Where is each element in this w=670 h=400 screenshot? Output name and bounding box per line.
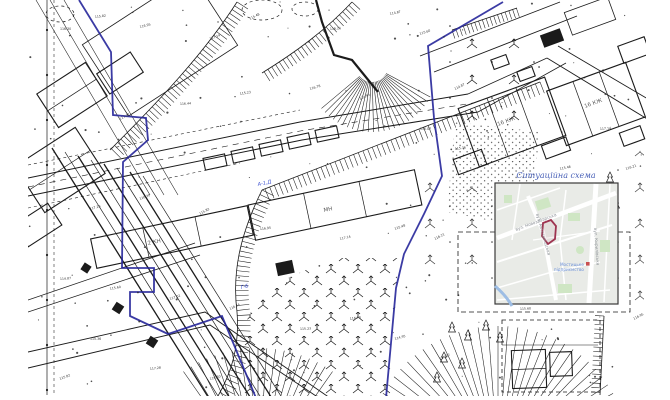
svg-text:117.02: 117.02	[119, 112, 131, 120]
svg-text:116.95: 116.95	[633, 312, 645, 321]
svg-text:116.07: 116.07	[420, 127, 431, 131]
svg-text:116.07: 116.07	[439, 353, 451, 361]
svg-text:116.30: 116.30	[139, 193, 151, 201]
svg-text:114.87: 114.87	[60, 276, 71, 281]
topographic-plan-canvas: 116.30115.82116.95117.14115.48116.21114.…	[0, 0, 670, 400]
svg-text:115.36: 115.36	[90, 337, 101, 341]
svg-text:116.30: 116.30	[209, 374, 221, 381]
svg-text:116.78: 116.78	[309, 84, 321, 91]
svg-text:116.21: 116.21	[330, 26, 341, 31]
building-label-16kzh-2: 16 КЖ	[584, 98, 604, 110]
svg-text:117.14: 117.14	[339, 235, 351, 241]
svg-text:115.60: 115.60	[109, 285, 121, 291]
survey-plan-page: 116.30115.82116.95117.14115.48116.21114.…	[0, 0, 670, 400]
building-label-mn: МН	[323, 206, 333, 214]
inset-poi-marker	[586, 262, 590, 266]
svg-text:114.87: 114.87	[389, 10, 401, 16]
svg-text:116.95: 116.95	[260, 226, 272, 231]
svg-text:115.23: 115.23	[239, 90, 251, 96]
svg-text:116.30: 116.30	[60, 27, 71, 31]
svg-text:115.23: 115.23	[300, 327, 311, 331]
svg-text:116.95: 116.95	[139, 22, 151, 29]
blue-annotation-2: Г-б	[240, 283, 249, 290]
svg-text:114.95: 114.95	[394, 334, 406, 341]
svg-text:115.48: 115.48	[394, 223, 406, 231]
svg-text:117.14: 117.14	[209, 33, 221, 41]
svg-text:117.28: 117.28	[89, 204, 101, 211]
svg-text:116.44: 116.44	[229, 303, 241, 311]
svg-text:115.60: 115.60	[419, 29, 431, 36]
svg-text:115.82: 115.82	[95, 14, 107, 19]
svg-text:117.02: 117.02	[169, 294, 181, 301]
svg-text:115.60: 115.60	[520, 306, 531, 311]
svg-text:116.44: 116.44	[180, 101, 191, 106]
svg-text:117.28: 117.28	[150, 366, 162, 371]
inset-poi-label-line2: підприємство	[554, 267, 585, 272]
svg-text:115.82: 115.82	[59, 373, 71, 381]
building-label-2kn: 2 КН	[147, 238, 161, 247]
situation-scheme-inset: Ситуаційна схема	[495, 171, 618, 306]
inset-title: Ситуаційна схема	[516, 171, 596, 180]
